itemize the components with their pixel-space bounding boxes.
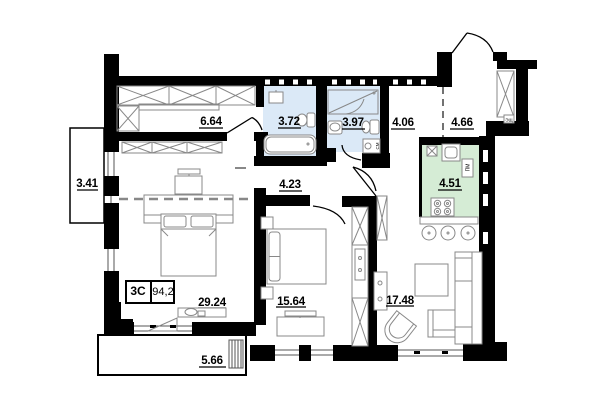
svg-text:3.72: 3.72 (278, 116, 300, 128)
svg-text:15.64: 15.64 (277, 296, 306, 308)
svg-text:ПМ: ПМ (466, 164, 472, 172)
svg-text:6.64: 6.64 (200, 116, 222, 128)
svg-text:4.06: 4.06 (392, 117, 414, 129)
svg-text:ЭЩ: ЭЩ (505, 118, 513, 123)
svg-text:СМ: СМ (375, 142, 380, 149)
svg-text:17.48: 17.48 (386, 295, 415, 307)
svg-text:5.66: 5.66 (201, 355, 223, 367)
svg-text:29.24: 29.24 (198, 297, 227, 309)
svg-text:3.41: 3.41 (76, 178, 98, 190)
svg-text:94,2: 94,2 (152, 286, 173, 298)
svg-text:4.51: 4.51 (439, 178, 461, 190)
svg-text:4.23: 4.23 (279, 179, 301, 191)
svg-text:4.66: 4.66 (451, 117, 473, 129)
svg-text:3.97: 3.97 (342, 117, 364, 129)
svg-text:3C: 3C (130, 284, 146, 298)
